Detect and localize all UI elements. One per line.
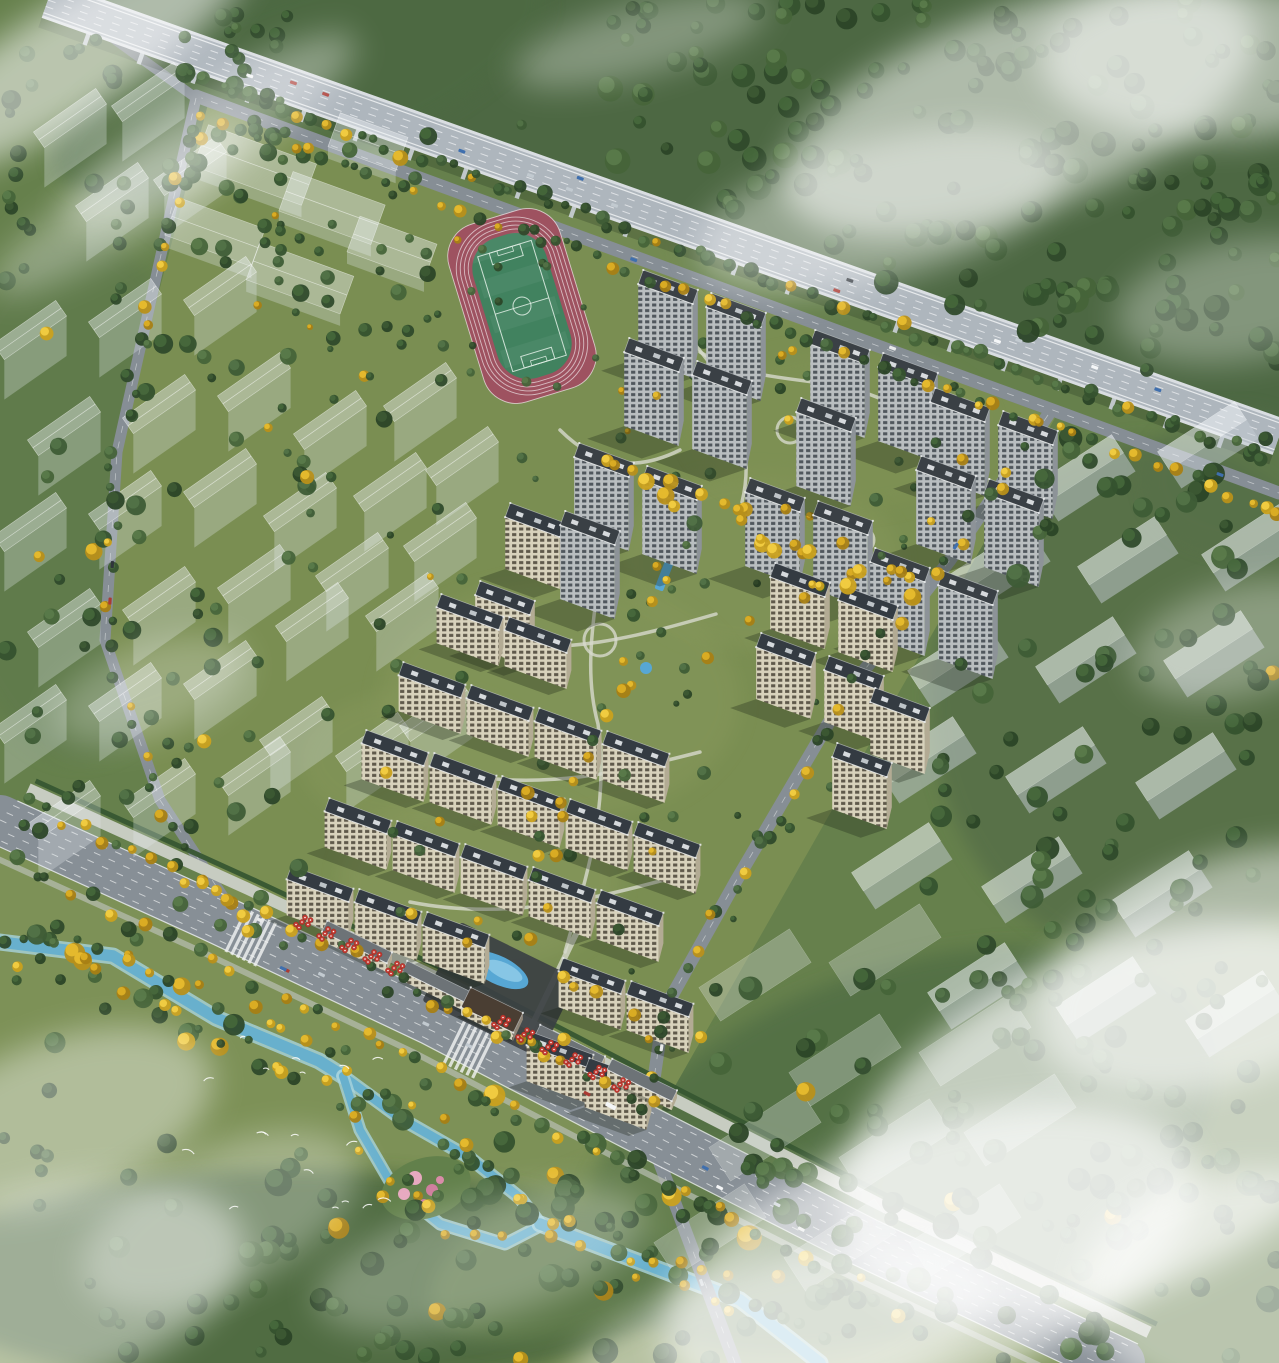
aerial-masterplan-rendering xyxy=(0,0,1279,1363)
scene-svg xyxy=(0,0,1279,1363)
